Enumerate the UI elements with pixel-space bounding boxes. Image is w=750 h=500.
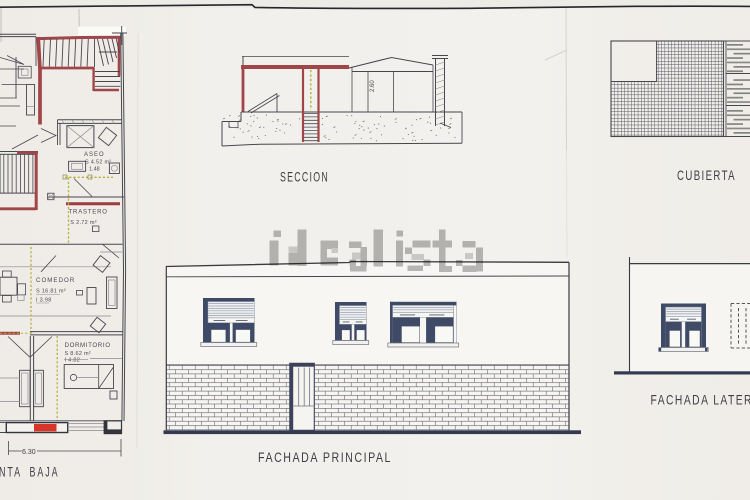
svg-text:FACHADA PRINCIPAL: FACHADA PRINCIPAL — [258, 449, 392, 465]
svg-text:6.30: 6.30 — [22, 449, 36, 456]
svg-text:I 3.98: I 3.98 — [36, 298, 52, 304]
svg-text:NTA: NTA — [0, 464, 22, 480]
svg-text:SECCION: SECCION — [280, 169, 329, 185]
svg-text:FACHADA LATERAL: FACHADA LATERAL — [651, 392, 750, 408]
svg-text:DORMITORIO: DORMITORIO — [65, 342, 111, 349]
svg-text:S 8.62 m²: S 8.62 m² — [65, 351, 92, 357]
svg-text:I 4.82: I 4.82 — [65, 358, 81, 364]
svg-text:TRASTERO: TRASTERO — [69, 210, 108, 216]
svg-text:2.60: 2.60 — [370, 80, 376, 92]
svg-text:S 16.81 m²: S 16.81 m² — [36, 289, 66, 295]
svg-text:1.48: 1.48 — [89, 167, 100, 173]
svg-text:BAJA: BAJA — [30, 464, 60, 480]
svg-text:S 4.52 m²: S 4.52 m² — [85, 160, 112, 166]
svg-text:COMEDOR: COMEDOR — [36, 277, 75, 284]
svg-text:CUBIERTA: CUBIERTA — [677, 167, 736, 183]
svg-text:S 2.72 m²: S 2.72 m² — [70, 220, 97, 226]
svg-text:ASEO: ASEO — [84, 152, 105, 158]
